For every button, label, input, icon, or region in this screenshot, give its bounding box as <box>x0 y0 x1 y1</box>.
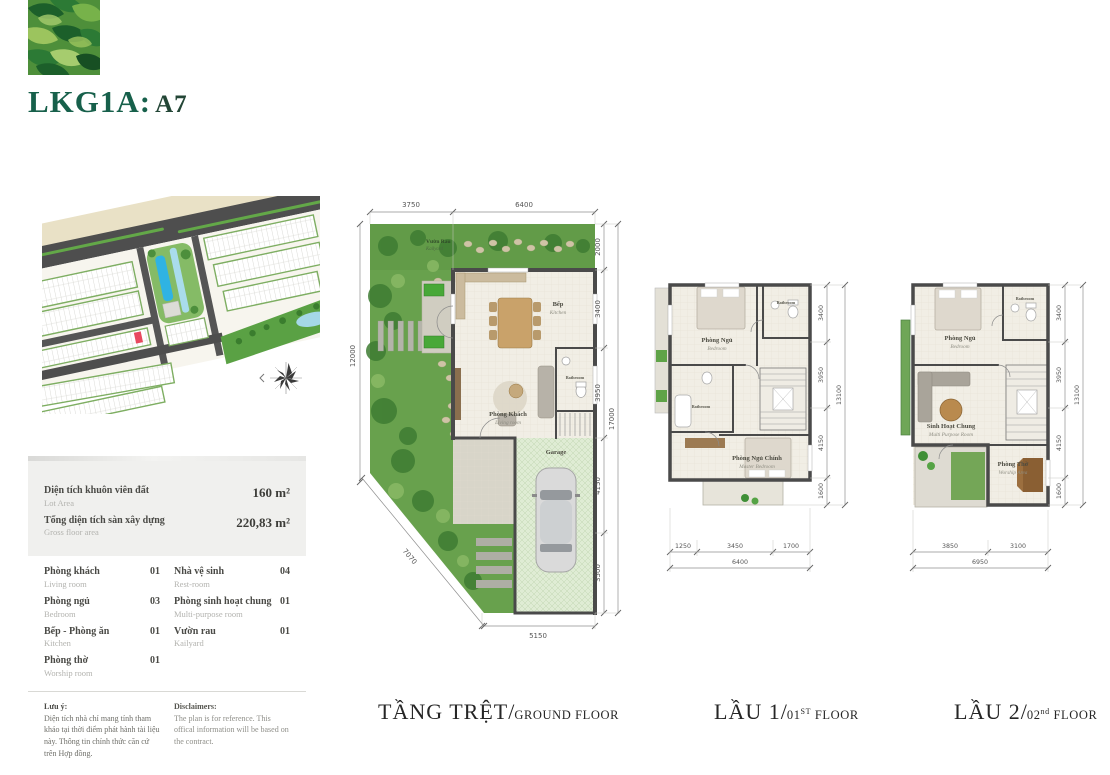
bedroom-label-en: Bedroom <box>950 344 969 350</box>
living-label-en: Living room <box>494 420 521 426</box>
caption-en-ordinal: nd <box>1041 707 1050 716</box>
dim-3500: 3500 <box>594 564 602 582</box>
master-label-en: Master Bedroom <box>738 464 775 470</box>
kitchen-label-vi: Bếp <box>553 301 564 308</box>
dim-4150: 4150 <box>594 477 602 495</box>
note-en-title: Disclaimers: <box>174 701 290 713</box>
dim-3750: 3750 <box>402 201 420 209</box>
room-label-en: Bedroom <box>44 609 90 619</box>
page-title: LKG1A: A7 <box>28 84 188 120</box>
room-label-vi: Phòng thờ <box>44 655 93 668</box>
room-count: 03 <box>150 596 160 619</box>
info-panel: Diện tích khuôn viên đất Lot Area 160 m²… <box>28 456 306 775</box>
site-map <box>42 196 320 414</box>
room-row: Phòng ngủ Bedroom 03 <box>44 596 160 619</box>
bedroom-label-vi: Phòng Ngủ <box>702 337 733 344</box>
living-label-vi: Phòng Khách <box>489 411 527 418</box>
area-row-gfa: Tổng diện tích sàn xây dựng Gross floor … <box>44 515 290 538</box>
caption-vi: LẦU 2 <box>954 699 1021 724</box>
rooms-col-left: Phòng khách Living room 01 Phòng ngủ Bed… <box>44 566 160 685</box>
room-label-en: Worship room <box>44 668 93 678</box>
caption-en-main: 02 <box>1027 708 1041 722</box>
room-row: Nhà vệ sinh Rest-room 04 <box>174 566 290 589</box>
caption-floor2: LẦU 2/02nd FLOOR <box>954 699 1097 725</box>
room-label-en: Living room <box>44 579 100 589</box>
room-row: Bếp - Phòng ăn Kitchen 01 <box>44 626 160 649</box>
gfa-label-en: Gross floor area <box>44 527 165 537</box>
caption-en-ordinal: ST <box>801 707 812 716</box>
dim-3400: 3400 <box>1056 305 1063 321</box>
dim-3950: 3950 <box>1056 367 1063 383</box>
lot-area-value: 160 m² <box>253 485 290 501</box>
compass-icon <box>260 362 302 394</box>
dim-1600: 1600 <box>1056 483 1063 499</box>
dim-6400: 6400 <box>732 559 748 566</box>
caption-en-tail: FLOOR <box>811 708 859 722</box>
room-label-en: Multi-purpose room <box>174 609 272 619</box>
floor2-stairs <box>1006 365 1048 440</box>
bathroom-mid-label: Bathroom <box>692 404 711 409</box>
bathroom-top-label: Bathroom <box>777 300 796 305</box>
note-en: Disclaimers: The plan is for reference. … <box>174 701 290 759</box>
room-count: 01 <box>280 626 290 649</box>
caption-en: 02nd FLOOR <box>1027 708 1098 722</box>
dim-3950: 3950 <box>594 384 602 402</box>
leaf-pattern <box>28 0 100 75</box>
lot-area-label-vi: Diện tích khuôn viên đất <box>44 485 149 498</box>
room-label-en: Kitchen <box>44 638 109 648</box>
garden-label-en: Kailyard <box>425 247 443 252</box>
room-row: Phòng thờ Worship room 01 <box>44 655 160 678</box>
worship-label-vi: Phòng Thờ <box>998 461 1029 468</box>
gfa-label-vi: Tổng diện tích sàn xây dựng <box>44 515 165 528</box>
garden-label-vi: Vườn Rau <box>426 239 451 245</box>
room-label-en: Kailyard <box>174 638 216 648</box>
dim-4150: 4150 <box>818 435 825 451</box>
room-count: 01 <box>150 655 160 678</box>
rooms-col-right: Nhà vệ sinh Rest-room 04 Phòng sinh hoạt… <box>174 566 290 685</box>
room-count: 01 <box>150 626 160 649</box>
dim-3100: 3100 <box>1010 543 1026 550</box>
area-row-lot: Diện tích khuôn viên đất Lot Area 160 m² <box>44 485 290 508</box>
room-label-vi: Phòng sinh hoạt chung <box>174 596 272 609</box>
bathroom-label: Bathroom <box>566 375 585 380</box>
unit-code: A7 <box>155 91 188 118</box>
worship-label-en: Worship Area <box>999 470 1028 476</box>
dim-17000: 17000 <box>608 408 616 430</box>
dim-3400: 3400 <box>818 305 825 321</box>
bedroom-label-vi: Phòng Ngủ <box>945 335 976 342</box>
multi-label-en: Multi Purpose Room <box>928 432 973 438</box>
room-label-vi: Bếp - Phòng ăn <box>44 626 109 639</box>
gfa-value: 220,83 m² <box>236 515 290 531</box>
caption-en-main: 01 <box>787 708 801 722</box>
caption-vi: LẦU 1 <box>714 699 781 724</box>
master-label-vi: Phòng Ngủ Chính <box>732 455 782 462</box>
dim-1600: 1600 <box>818 483 825 499</box>
note-vi-body: Diện tích nhà chỉ mang tính tham khảo tạ… <box>44 713 160 759</box>
lot-area-label-en: Lot Area <box>44 498 149 508</box>
kitchen-label-en: Kitchen <box>549 310 567 316</box>
dim-3850: 3850 <box>942 543 958 550</box>
caption-en-tail: FLOOR <box>1050 708 1098 722</box>
dim-7070: 7070 <box>401 547 419 566</box>
panel-rooms: Phòng khách Living room 01 Phòng ngủ Bed… <box>28 556 306 691</box>
room-row: Phòng khách Living room 01 <box>44 566 160 589</box>
dim-3400: 3400 <box>594 300 602 318</box>
caption-vi: TẦNG TRỆT <box>378 699 508 724</box>
ground-floor-plan: Vườn Rau Kailyard <box>348 186 648 656</box>
note-en-body: The plan is for reference. This offical … <box>174 713 290 748</box>
caption-en-main: GROUND FLOOR <box>514 708 619 722</box>
dim-3950: 3950 <box>818 367 825 383</box>
room-label-vi: Phòng khách <box>44 566 100 579</box>
dim-6950: 6950 <box>972 559 988 566</box>
floor1-stairs <box>760 368 806 430</box>
dim-3450: 3450 <box>727 543 743 550</box>
dim-13100: 13100 <box>1074 385 1081 405</box>
dim-2000: 2000 <box>594 238 602 256</box>
caption-en: GROUND FLOOR <box>514 708 619 722</box>
panel-areas: Diện tích khuôn viên đất Lot Area 160 m²… <box>28 461 306 556</box>
panel-notes: Lưu ý: Diện tích nhà chỉ mang tính tham … <box>28 691 306 775</box>
room-label-en: Rest-room <box>174 579 224 589</box>
room-count: 04 <box>280 566 290 589</box>
room-row: Phòng sinh hoạt chung Multi-purpose room… <box>174 596 290 619</box>
caption-floor1: LẦU 1/01ST FLOOR <box>714 699 859 725</box>
bathroom-label: Bathroom <box>1016 296 1035 301</box>
site-map-graphics <box>42 196 320 414</box>
dim-5150: 5150 <box>529 632 547 640</box>
caption-en: 01ST FLOOR <box>787 708 859 722</box>
dim-4150: 4150 <box>1056 435 1063 451</box>
room-label-vi: Phòng ngủ <box>44 596 90 609</box>
room-label-vi: Nhà vệ sinh <box>174 566 224 579</box>
note-vi: Lưu ý: Diện tích nhà chỉ mang tính tham … <box>44 701 160 759</box>
floor2-plan: Phòng Ngủ Bedroom Bathroom Sinh Hoạt Chu… <box>893 260 1108 605</box>
dim-13100: 13100 <box>836 385 843 405</box>
block-code: LKG1A: <box>28 84 151 119</box>
garage-label: Garage <box>546 449 567 456</box>
room-label-vi: Vườn rau <box>174 626 216 639</box>
note-vi-title: Lưu ý: <box>44 701 160 713</box>
dim-1250: 1250 <box>675 543 691 550</box>
dim-12000: 12000 <box>349 345 357 367</box>
car <box>532 468 580 572</box>
dim-1700: 1700 <box>783 543 799 550</box>
dim-6400: 6400 <box>515 201 533 209</box>
multi-label-vi: Sinh Hoạt Chung <box>927 423 976 430</box>
room-count: 01 <box>150 566 160 589</box>
caption-ground-floor: TẦNG TRỆT/GROUND FLOOR <box>378 699 619 725</box>
floor1-plan: Phòng Ngủ Bedroom Bathroom Bathroom Phòn… <box>645 260 880 605</box>
room-row: Vườn rau Kailyard 01 <box>174 626 290 649</box>
room-count: 01 <box>280 596 290 619</box>
bedroom-label-en: Bedroom <box>707 346 726 352</box>
